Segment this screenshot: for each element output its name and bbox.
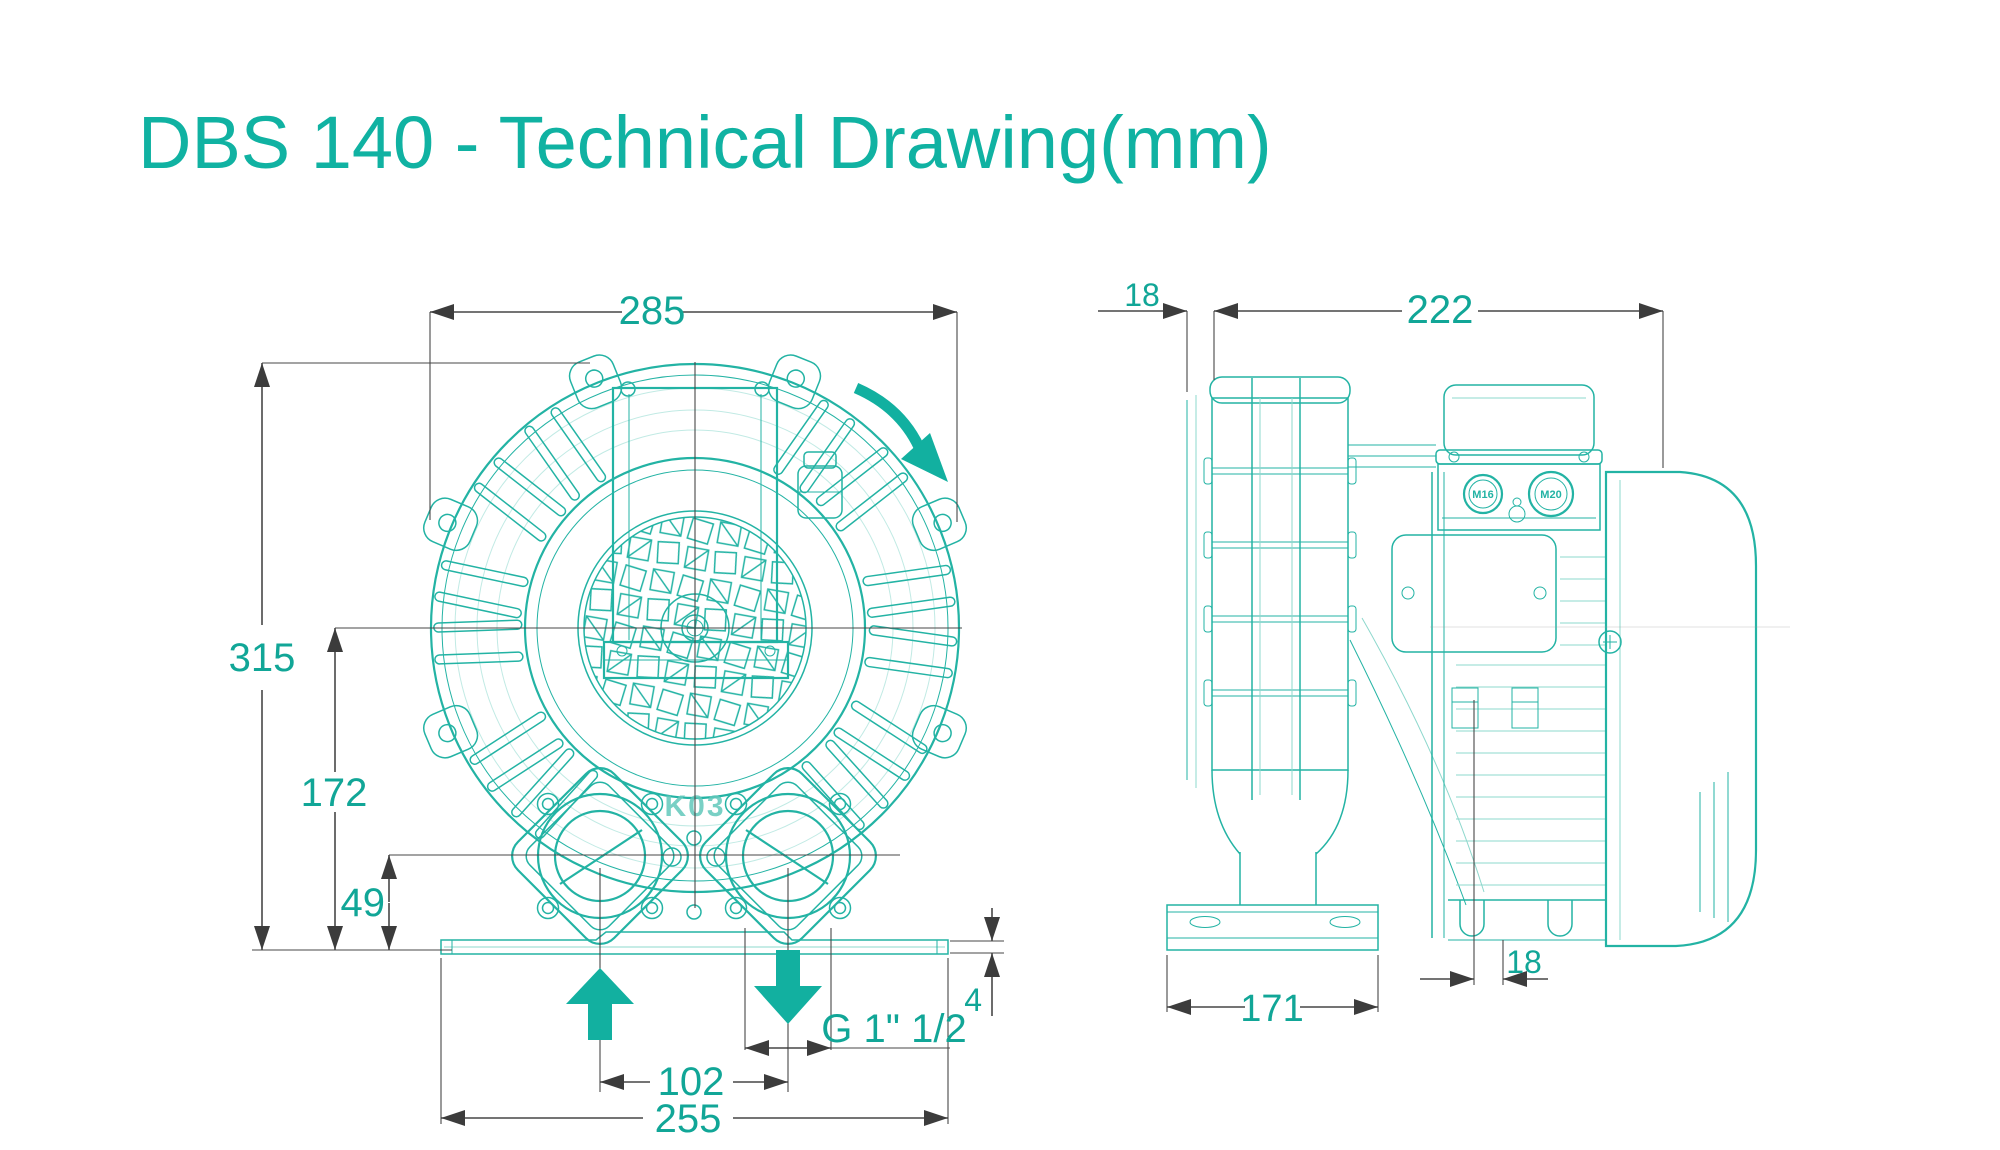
dim-base-length: 255 [655, 1097, 722, 1141]
dim-front-overhang: 18 [1124, 277, 1160, 313]
gland-m16-label: M16 [1472, 489, 1493, 501]
dim-port-axis-height: 49 [341, 881, 386, 925]
side-view: M16 M20 [1167, 377, 1790, 950]
drawing-canvas: K03 [0, 0, 2000, 1150]
cable-gland [798, 452, 842, 518]
fan-cover [1599, 472, 1756, 946]
inlet-up-arrow [566, 968, 634, 1040]
outlet-down-arrow [754, 950, 822, 1024]
terminal-box: M16 M20 [1436, 385, 1602, 530]
dim-rear-overhang: 18 [1506, 944, 1542, 980]
gland-m20-label: M20 [1540, 489, 1561, 501]
base-plate [441, 932, 948, 954]
mounting-foot [1167, 852, 1378, 950]
dim-overall-height: 315 [229, 636, 296, 680]
flow-arrows [566, 950, 822, 1040]
motor-body [1432, 472, 1606, 940]
technical-drawing-page: DBS 140 - Technical Drawing(mm) [0, 0, 2000, 1150]
nameplate [1392, 535, 1556, 652]
dim-foot-length: 171 [1240, 988, 1303, 1030]
dim-base-thickness: 4 [964, 982, 982, 1018]
dim-overall-width: 285 [619, 289, 686, 333]
dimension-lines [252, 311, 1663, 1124]
silencer-stack [1204, 377, 1356, 854]
dim-port-thread: G 1" 1/2 [821, 1007, 966, 1051]
dim-axis-height: 172 [301, 771, 368, 815]
dim-body-length: 222 [1407, 288, 1474, 332]
